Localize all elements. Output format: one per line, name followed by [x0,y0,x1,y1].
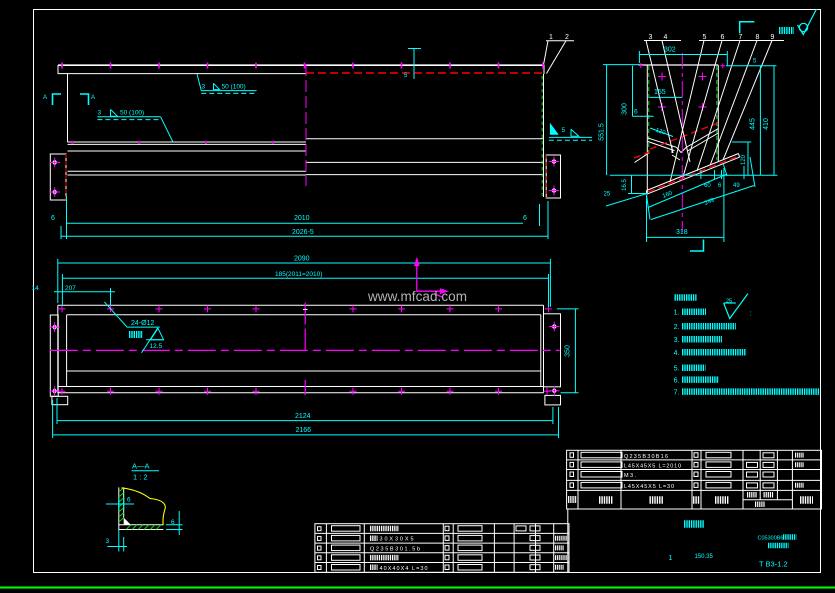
svg-text:445: 445 [750,118,757,130]
svg-text:25: 25 [604,192,611,198]
svg-text:50 (100): 50 (100) [222,84,246,91]
svg-text:6: 6 [51,215,55,222]
svg-text:6: 6 [523,215,527,222]
svg-text:A: A [91,95,95,101]
svg-text:5.: 5. [674,366,680,373]
svg-text:4.: 4. [674,350,680,357]
svg-text:5: 5 [562,127,566,134]
svg-text:49: 49 [733,183,740,189]
svg-text:7.: 7. [674,389,680,396]
svg-text:2: 2 [565,34,569,41]
svg-text:4: 4 [664,34,668,41]
svg-text:3.: 3. [674,337,680,344]
svg-text:2010: 2010 [294,215,310,222]
svg-text:50 (100): 50 (100) [120,110,144,117]
svg-text:2124: 2124 [295,413,311,420]
svg-text:60: 60 [704,183,711,189]
svg-text:3: 3 [106,538,110,545]
svg-text:1.: 1. [674,310,680,317]
svg-text:410: 410 [763,118,770,130]
svg-text:5: 5 [703,34,707,41]
svg-text:www.mfcad.com: www.mfcad.com [367,289,467,304]
svg-text:7: 7 [739,34,743,41]
svg-text:30X30X5: 30X30X5 [380,537,414,543]
svg-text:Q235B30B16: Q235B30B16 [624,454,668,460]
svg-text:3: 3 [98,110,102,117]
svg-text:M3.: M3. [624,473,636,479]
svg-text:16.5: 16.5 [622,179,628,191]
svg-text:551.5: 551.5 [599,123,606,141]
svg-text:25: 25 [726,299,732,305]
svg-text:9: 9 [771,34,775,41]
svg-text:8: 8 [756,34,760,41]
svg-text:300: 300 [622,103,629,115]
svg-text:302: 302 [664,47,676,54]
svg-text:150.35: 150.35 [695,554,714,560]
svg-text:6: 6 [127,497,131,504]
svg-text:L45X45X5 L=2010: L45X45X5 L=2010 [624,464,681,470]
svg-text:3: 3 [649,34,653,41]
svg-text:6: 6 [634,109,638,116]
svg-text:6.: 6. [674,377,680,384]
svg-text:A—A: A—A [132,462,150,471]
svg-text:6: 6 [171,519,175,526]
svg-text:12.5: 12.5 [150,343,163,350]
svg-text:207: 207 [65,285,76,292]
svg-text:350: 350 [565,345,572,357]
svg-text:Q235B301.5b: Q235B301.5b [370,546,420,552]
svg-text:A: A [43,95,47,101]
svg-text:6: 6 [721,34,725,41]
svg-text:24-Ø12: 24-Ø12 [131,320,154,327]
svg-text:2.: 2. [674,324,680,331]
svg-text:1 : 2: 1 : 2 [133,473,148,482]
svg-text:C05300B6: C05300B6 [758,536,784,542]
svg-text::: : [750,311,752,318]
svg-text:T B3-1.2: T B3-1.2 [759,560,788,569]
svg-text:1: 1 [669,555,673,562]
svg-text:318: 318 [676,229,688,236]
svg-text:185(2011=2010): 185(2011=2010) [275,271,322,278]
svg-text:L45X45X5 L=30: L45X45X5 L=30 [624,484,674,490]
svg-text:120: 120 [741,154,747,165]
svg-text:3: 3 [202,84,206,91]
svg-text:155: 155 [654,89,666,96]
svg-text:2166: 2166 [296,427,312,434]
svg-text:2090: 2090 [294,256,310,263]
svg-text:2026-5: 2026-5 [292,229,314,236]
svg-text:14: 14 [32,285,40,292]
svg-text:1: 1 [549,34,553,41]
